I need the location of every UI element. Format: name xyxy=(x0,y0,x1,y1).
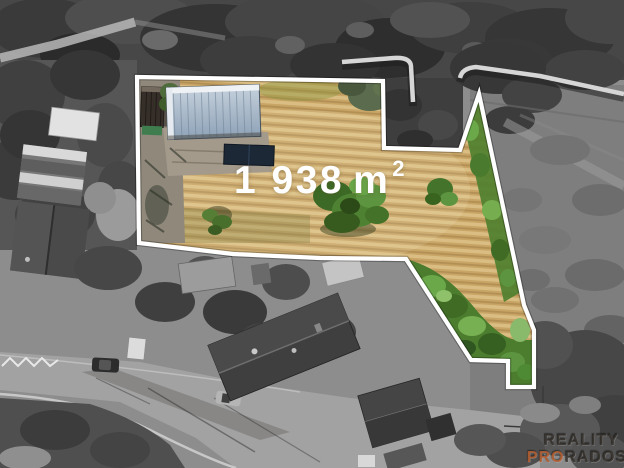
area-unit: m xyxy=(353,159,390,202)
watermark-accent: PRO xyxy=(527,449,565,466)
watermark-line2: PRORADOST xyxy=(527,450,624,467)
dark-car xyxy=(92,357,120,372)
area-label: 1 938m2 xyxy=(234,161,403,200)
white-roof-building xyxy=(48,107,99,141)
white-object xyxy=(358,455,375,467)
blue-roof-barn xyxy=(166,84,261,139)
green-tarp xyxy=(142,126,162,136)
striped-roof-building xyxy=(17,144,87,205)
area-value: 1 938 xyxy=(234,159,344,202)
aerial-scene xyxy=(0,0,624,468)
small-shed xyxy=(251,263,272,285)
white-van xyxy=(127,337,146,360)
watermark-rest: RADOST xyxy=(564,449,624,466)
watermark-line1: REALITY xyxy=(527,433,624,450)
watermark-logo: REALITY PRORADOST xyxy=(527,433,624,467)
area-exponent: 2 xyxy=(392,156,404,181)
aerial-property-photo: 1 938m2 REALITY PRORADOST xyxy=(0,0,624,468)
